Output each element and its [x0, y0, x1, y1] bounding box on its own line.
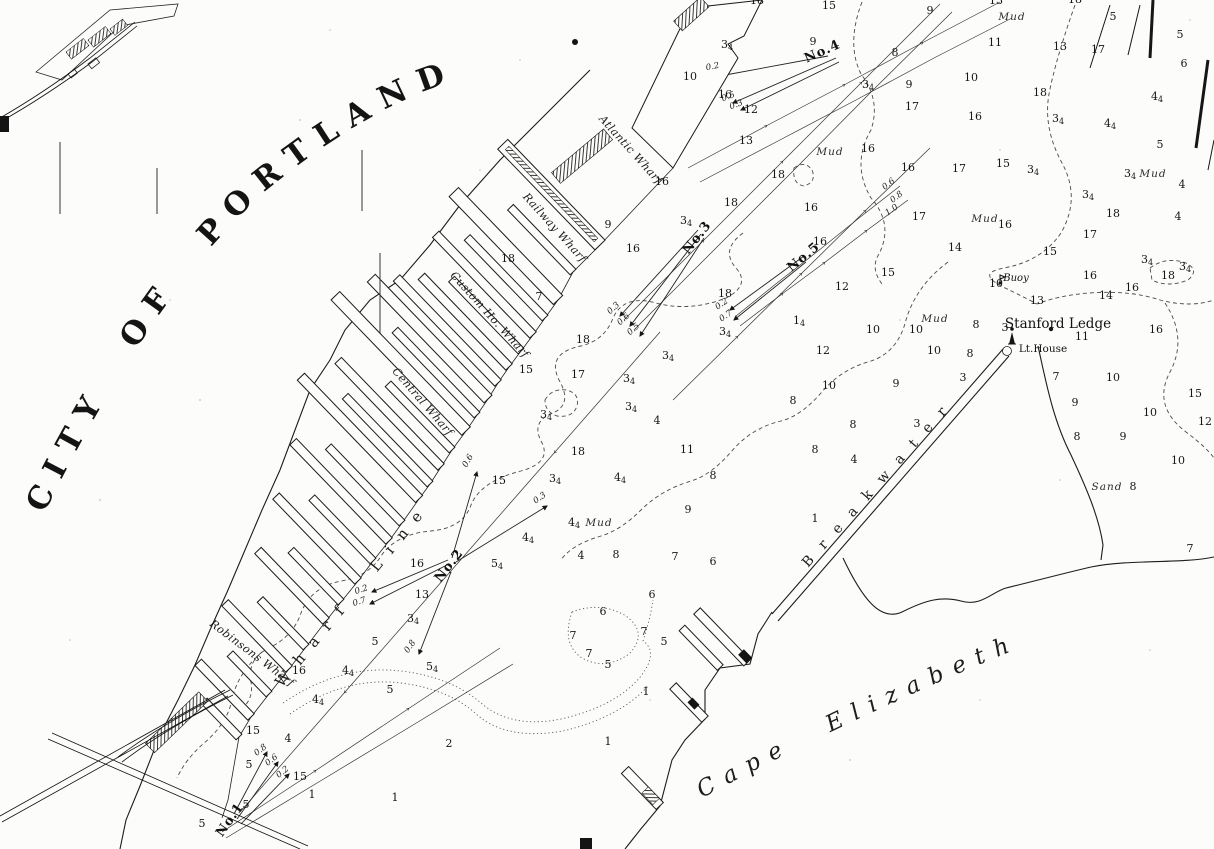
sounding: 11: [988, 36, 1002, 49]
sounding: 10: [683, 70, 697, 83]
sounding: 34: [719, 325, 731, 339]
breakwater-inner: [778, 356, 1009, 621]
sounding: 10: [866, 323, 880, 336]
current-station-label: No.5: [784, 239, 823, 275]
mud-label: Mud: [920, 313, 948, 325]
ink-blot: [572, 39, 578, 45]
sounding: 12: [1198, 415, 1212, 428]
sounding: 5: [199, 817, 206, 830]
sounding: 17: [905, 100, 919, 113]
sounding: 44: [568, 516, 580, 530]
sounding: 7: [672, 550, 679, 563]
sounding: 5: [372, 635, 379, 648]
sounding: 9: [906, 78, 913, 91]
sounding: 10: [1143, 406, 1157, 419]
sounding: 4: [285, 732, 292, 745]
yard-outline: [36, 4, 178, 80]
sounding: 11: [680, 443, 694, 456]
sounding: 6: [710, 555, 717, 568]
sounding: 15: [822, 0, 836, 12]
mudflat-line: [290, 682, 649, 734]
sounding: 3: [914, 417, 921, 430]
sounding: 54: [426, 660, 438, 674]
sounding: 7: [1053, 370, 1060, 383]
sounding: 10: [1106, 371, 1120, 384]
rail-track: [52, 733, 308, 846]
current-speed-label: 0.8: [888, 189, 905, 206]
sounding: 4: [851, 453, 858, 466]
sounding: 34: [662, 349, 674, 363]
sounding: 13: [739, 134, 753, 147]
ink-mark: [580, 838, 592, 849]
rail-track: [0, 22, 135, 118]
sounding: 5: [1157, 138, 1164, 151]
sounding: 1: [605, 735, 612, 748]
sounding: 9: [685, 503, 692, 516]
sounding: 5: [1110, 10, 1117, 23]
track-line: [700, 18, 1012, 182]
sounding: 16: [1149, 323, 1163, 336]
sounding: 17: [571, 368, 585, 381]
sounding: 18: [724, 196, 738, 209]
sounding: 12: [816, 344, 830, 357]
current-speed-label: 0.8: [252, 742, 269, 759]
sounding: 9: [893, 377, 900, 390]
sounding: 4: [654, 414, 661, 427]
current-speed-label: 0.3: [531, 490, 548, 506]
sounding: 16: [861, 142, 875, 155]
sounding: 14: [1099, 289, 1113, 302]
sounding: 11: [1075, 330, 1089, 343]
breakwater-tip: [1003, 347, 1012, 356]
sand-boundary: [1038, 346, 1103, 560]
cape-north-coast: [843, 557, 1214, 614]
portland-harbor-chart: CITY OF PORTLAND Cape Elizabeth Breakwat…: [0, 0, 1214, 849]
sounding: 12: [835, 280, 849, 293]
sounding: 17: [1091, 43, 1105, 56]
sounding: 17: [912, 210, 926, 223]
current-speed-label: 0.2: [274, 764, 291, 780]
sounding: 17: [1083, 228, 1097, 241]
sounding: 10: [927, 344, 941, 357]
sounding: 14: [948, 241, 962, 254]
current-station-label: No.4: [802, 37, 843, 66]
yard-building-hatch: [66, 38, 89, 59]
sounding: 8: [1130, 480, 1137, 493]
pierhead-line: [222, 168, 673, 818]
current-speed-label: 0.8: [402, 638, 418, 655]
sounding: 44: [312, 693, 324, 707]
sounding: 13: [1053, 40, 1067, 53]
mud-label: Mud: [970, 213, 998, 225]
sounding: 1: [392, 791, 399, 804]
sounding: 5: [387, 683, 394, 696]
railroad-yard: [0, 4, 178, 132]
compass-ray: [1208, 140, 1214, 170]
mud-label: Mud: [997, 11, 1025, 23]
sounding: 8: [973, 318, 980, 331]
sounding: 18: [501, 252, 515, 265]
sounding: 34: [549, 472, 561, 486]
current-station-label: No.2: [432, 546, 467, 585]
sounding: 18: [571, 445, 585, 458]
pier: [309, 495, 376, 564]
breakwater-label: Breakwater: [799, 394, 960, 571]
sounding: 4: [1179, 178, 1186, 191]
railroad-bottom: [0, 690, 308, 849]
sounding: 18: [750, 0, 764, 7]
sounding: 8: [892, 46, 899, 59]
track-line: [740, 200, 908, 326]
sounding: 10: [822, 379, 836, 392]
rail-trestle-hatch: [145, 692, 207, 753]
current-speed-label: 0.3: [605, 300, 622, 316]
sounding: 18: [1068, 0, 1082, 6]
sounding: 16: [626, 242, 640, 255]
current-arrow: [419, 572, 451, 654]
sounding: 8: [790, 394, 797, 407]
sounding: 7: [586, 647, 593, 660]
lighthouse-label: Lt.House: [1019, 343, 1067, 355]
sounding: 18: [576, 333, 590, 346]
sounding: 18: [771, 168, 785, 181]
sounding: 34: [680, 214, 692, 228]
sounding: 16: [292, 664, 306, 677]
sounding: 4: [1175, 210, 1182, 223]
sounding: 8: [613, 548, 620, 561]
buoy-label: Buoy: [1002, 273, 1029, 284]
sounding: 15: [1043, 245, 1057, 258]
sounding: 9: [1072, 396, 1079, 409]
sounding: 6: [1181, 57, 1188, 70]
sounding: 4: [578, 549, 585, 562]
sounding: 16: [901, 161, 915, 174]
sounding: 34: [1082, 188, 1094, 202]
sounding: 15: [881, 266, 895, 279]
sounding: 15: [519, 363, 533, 376]
ink-mark: [0, 116, 9, 132]
sounding: 44: [1151, 90, 1163, 104]
sounding: 8: [1074, 430, 1081, 443]
sounding: 34: [1052, 112, 1064, 126]
sounding: 34: [1179, 260, 1191, 274]
sounding: 14: [793, 314, 805, 328]
sounding: 6: [600, 605, 607, 618]
cape-wharf: [621, 767, 663, 810]
sounding: 7: [1187, 542, 1194, 555]
sounding: 15: [246, 724, 260, 737]
mud-label: Mud: [584, 517, 612, 529]
sounding: 5: [605, 658, 612, 671]
contour-line: [1164, 303, 1214, 458]
sounding: 18: [1161, 269, 1175, 282]
sounding: 16: [410, 557, 424, 570]
sounding: 13: [989, 0, 1003, 7]
sounding: 5: [661, 635, 668, 648]
compass-rays: [1090, 0, 1214, 170]
compass-ray: [1150, 0, 1153, 58]
sounding: 1: [812, 512, 819, 525]
sounding: 18: [1033, 86, 1047, 99]
sounding: 10: [1171, 454, 1185, 467]
sounding: 34: [625, 400, 637, 414]
stanford-ledge-label: Stanford Ledge: [1005, 316, 1111, 332]
sounding: 1: [309, 788, 316, 801]
sounding: 34: [407, 612, 419, 626]
sounding: 16: [998, 218, 1012, 231]
sounding: 15: [996, 157, 1010, 170]
sounding: 16: [1083, 269, 1097, 282]
sounding: 8: [812, 443, 819, 456]
mud-label: Mud: [815, 146, 843, 158]
sounding: 18: [1106, 207, 1120, 220]
nautical-chart-page: CITY OF PORTLAND Cape Elizabeth Breakwat…: [0, 0, 1214, 849]
sounding: 7: [641, 625, 648, 638]
current-arrow: [733, 58, 836, 103]
sounding: 16: [1125, 281, 1139, 294]
sand-label: Sand: [1092, 481, 1123, 493]
sounding: 34: [862, 78, 874, 92]
sounding: 15: [1188, 387, 1202, 400]
sounding: 54: [491, 557, 503, 571]
sounding: 10: [989, 277, 1003, 290]
current-speed-label: 0.6: [461, 452, 477, 469]
sounding: 8: [850, 418, 857, 431]
back-shore: [120, 70, 590, 849]
sounding: 7: [570, 629, 577, 642]
mud-label: Mud: [1138, 168, 1166, 180]
sounding: 44: [522, 531, 534, 545]
track-line: [222, 648, 500, 832]
sounding: 16: [804, 201, 818, 214]
sounding: 13: [415, 588, 429, 601]
sounding: 8: [710, 469, 717, 482]
compass-ray: [1090, 5, 1110, 68]
compass-ray: [1196, 60, 1208, 148]
sounding: 17: [952, 162, 966, 175]
sounding: 5: [246, 758, 253, 771]
sounding: 44: [1104, 117, 1116, 131]
waterfront-building-hatch: [552, 129, 613, 183]
sounding: 13: [1030, 294, 1044, 307]
compass-ray: [1128, 5, 1140, 55]
sounding: 9: [927, 4, 934, 17]
pier: [433, 231, 537, 338]
sounding: 2: [446, 737, 453, 750]
sounding: 3: [960, 371, 967, 384]
sounding: 7: [536, 290, 543, 303]
sounding: 44: [342, 664, 354, 678]
sounding: 3: [1002, 321, 1009, 334]
sounding: 34: [623, 372, 635, 386]
sounding: 12: [744, 103, 758, 116]
pier: [255, 547, 330, 624]
sounding: 1: [643, 685, 650, 698]
rail-track: [0, 690, 225, 816]
sounding: 15: [293, 770, 307, 783]
sounding: 9: [605, 218, 612, 231]
sounding: 5: [1177, 28, 1184, 41]
sounding: 44: [614, 471, 626, 485]
current-arrow: [456, 506, 547, 562]
sounding: 8: [967, 347, 974, 360]
current-speed-label: 0.5: [625, 321, 642, 337]
sounding: 10: [964, 71, 978, 84]
sounding: 34: [1141, 253, 1153, 267]
sounding: 34: [1124, 167, 1136, 181]
sounding: 9: [1120, 430, 1127, 443]
sounding: 16: [968, 110, 982, 123]
sounding: 15: [492, 474, 506, 487]
sounding: 34: [540, 408, 552, 422]
sounding: 34: [1027, 163, 1039, 177]
sounding: 6: [649, 588, 656, 601]
